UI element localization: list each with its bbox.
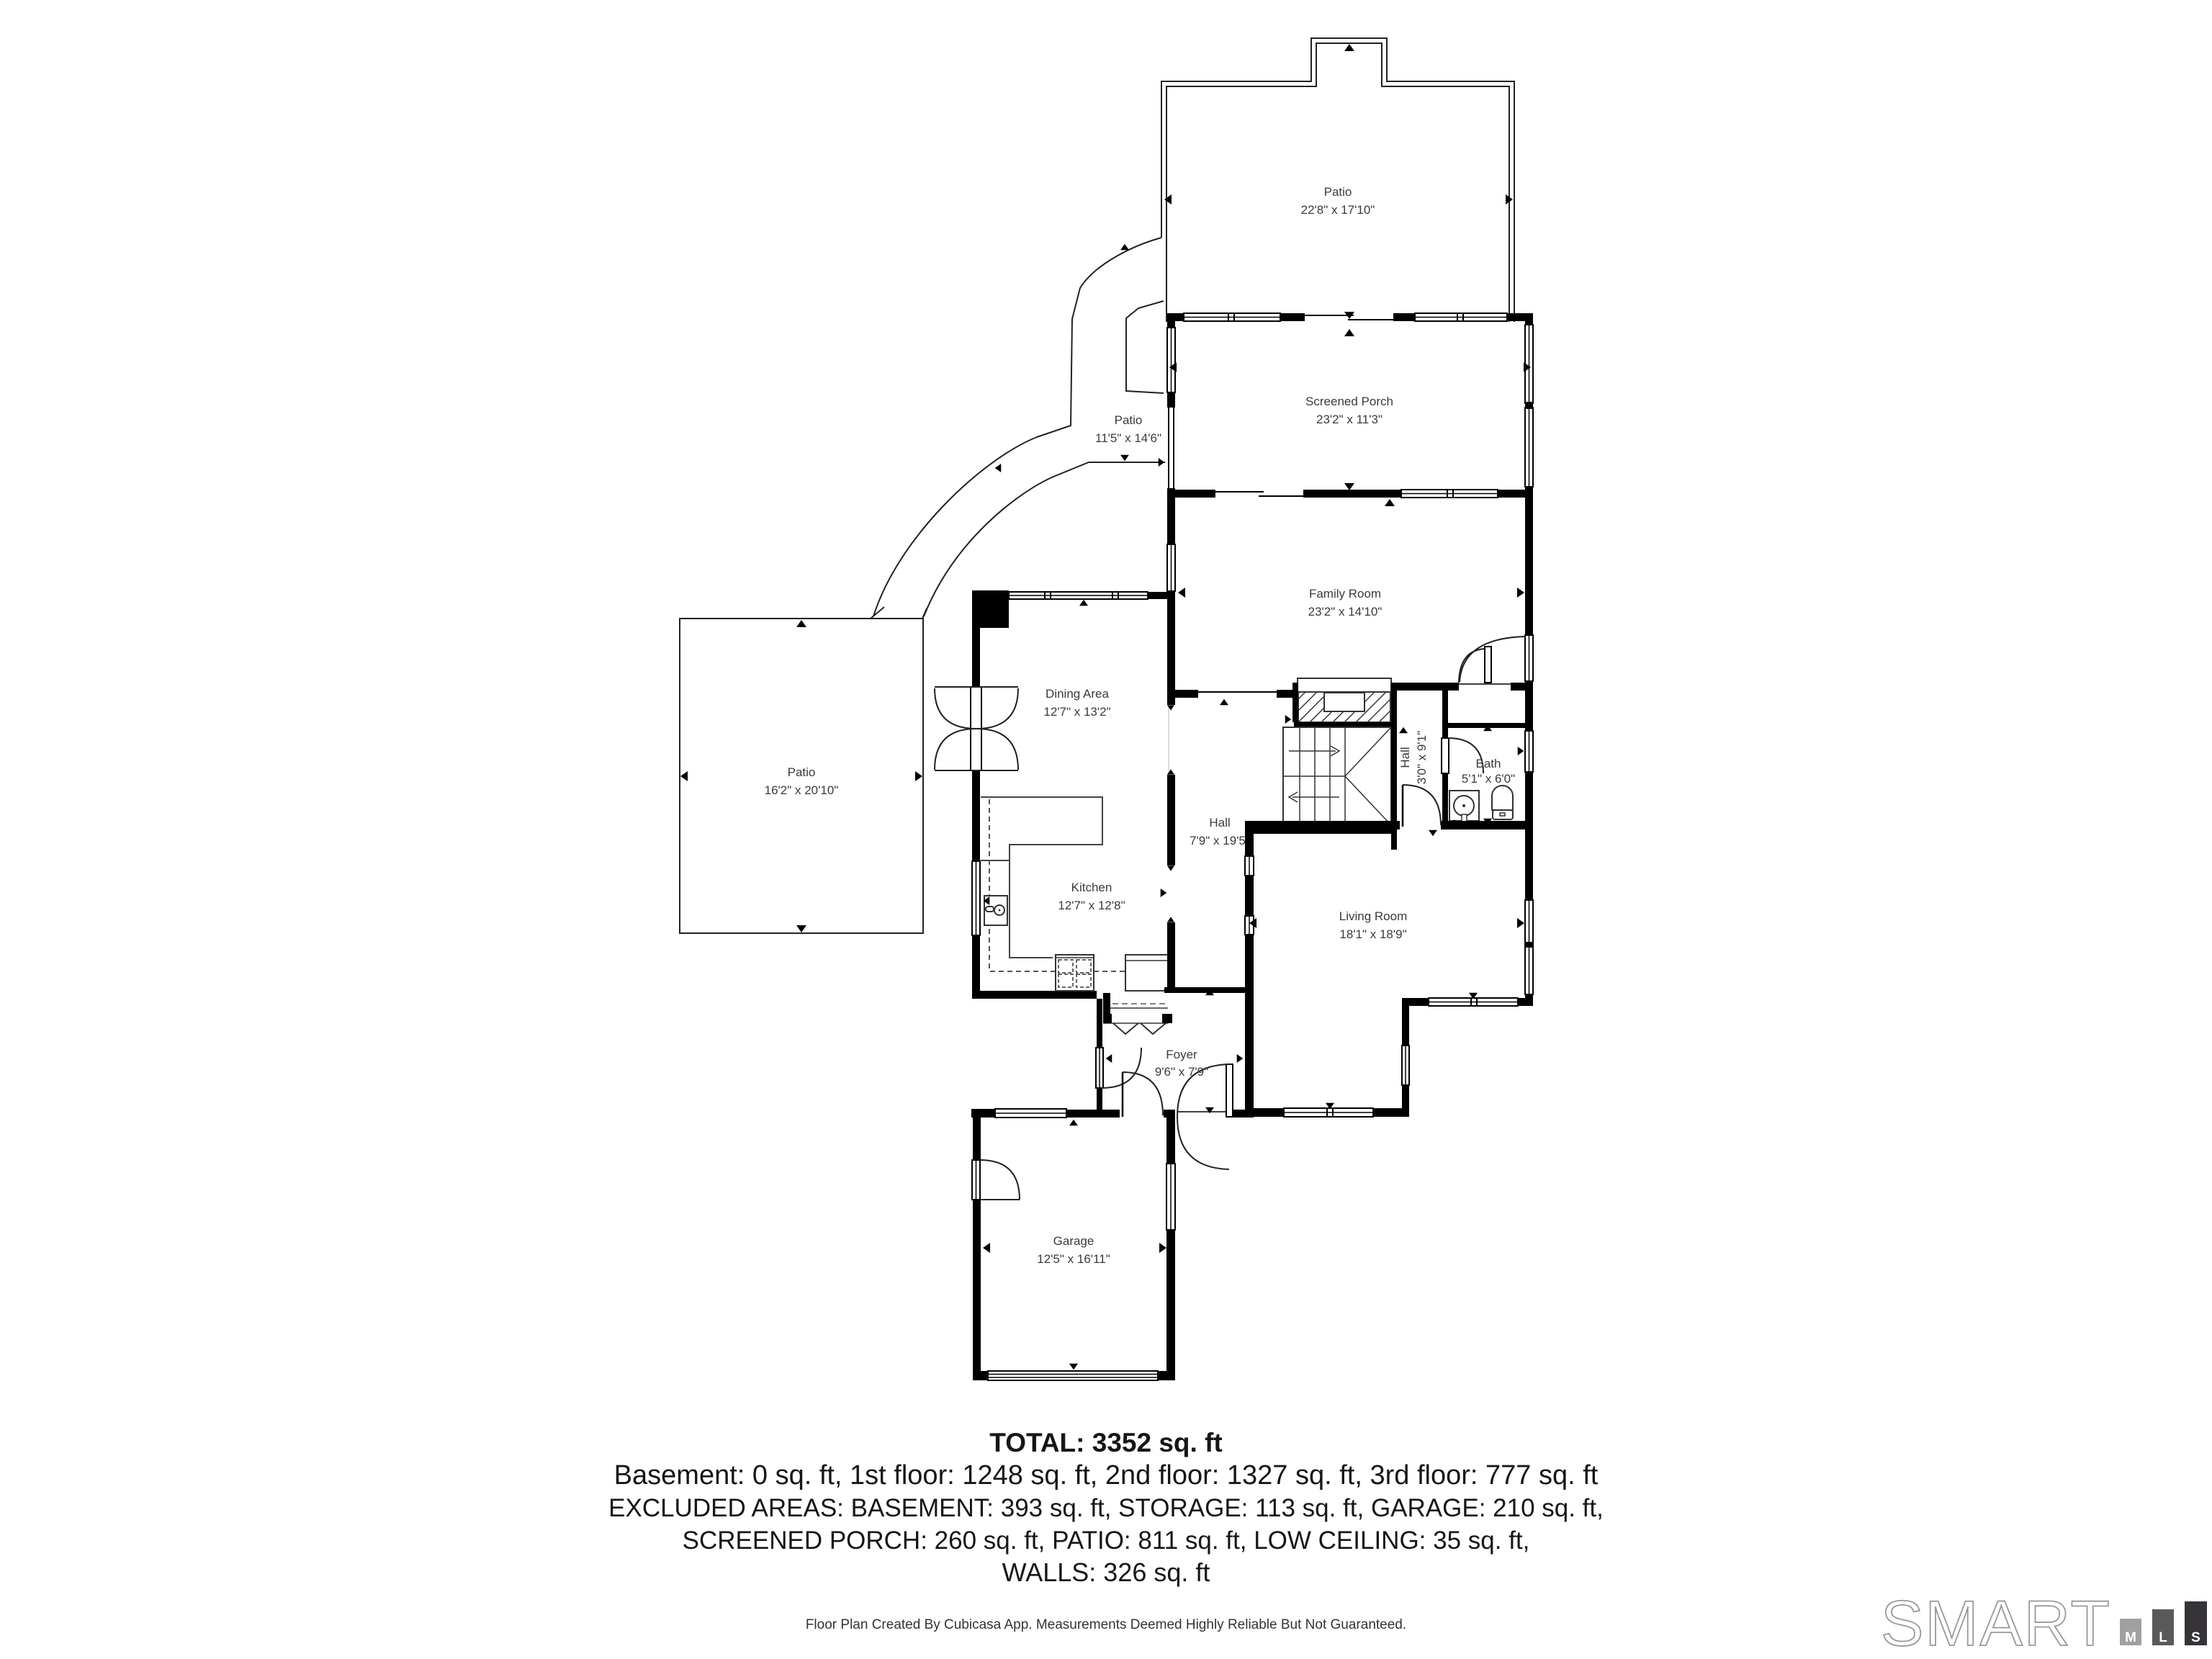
svg-text:22'8" x 17'10": 22'8" x 17'10"	[1301, 203, 1375, 217]
svg-text:7'9" x 19'5": 7'9" x 19'5"	[1190, 834, 1250, 848]
svg-text:Dining Area: Dining Area	[1046, 687, 1109, 701]
svg-text:Basement: 0 sq. ft, 1st floor:: Basement: 0 sq. ft, 1st floor: 1248 sq. …	[614, 1460, 1599, 1491]
svg-text:EXCLUDED AREAS: BASEMENT: 393: EXCLUDED AREAS: BASEMENT: 393 sq. ft, ST…	[608, 1494, 1604, 1522]
svg-text:Patio: Patio	[1324, 185, 1352, 199]
svg-text:Kitchen: Kitchen	[1071, 881, 1112, 894]
svg-text:SCREENED PORCH: 260 sq. ft, PA: SCREENED PORCH: 260 sq. ft, PATIO: 811 s…	[683, 1527, 1530, 1555]
svg-text:18'1" x 18'9": 18'1" x 18'9"	[1339, 927, 1406, 941]
svg-text:Patio: Patio	[788, 765, 816, 779]
svg-text:SMART: SMART	[1881, 1587, 2111, 1659]
svg-text:23'2" x 11'3": 23'2" x 11'3"	[1316, 413, 1382, 426]
svg-text:16'2" x 20'10": 16'2" x 20'10"	[765, 783, 839, 797]
svg-text:23'2" x 14'10": 23'2" x 14'10"	[1308, 605, 1382, 619]
svg-text:Hall: Hall	[1398, 747, 1412, 768]
svg-text:11'5" x 14'6": 11'5" x 14'6"	[1095, 431, 1161, 445]
svg-text:9'6" x 7'9": 9'6" x 7'9"	[1155, 1065, 1208, 1079]
svg-text:12'7" x 12'8": 12'7" x 12'8"	[1058, 899, 1125, 912]
svg-text:M: M	[2125, 1630, 2136, 1645]
svg-text:WALLS: 326 sq. ft: WALLS: 326 sq. ft	[1002, 1557, 1210, 1587]
svg-text:S: S	[2191, 1630, 2200, 1645]
svg-text:Screened Porch: Screened Porch	[1305, 395, 1393, 408]
svg-text:Floor Plan Created By Cubicasa: Floor Plan Created By Cubicasa App. Meas…	[806, 1617, 1406, 1632]
svg-text:12'5" x 16'11": 12'5" x 16'11"	[1037, 1252, 1110, 1266]
svg-text:Bath: Bath	[1476, 757, 1501, 770]
svg-text:Living Room: Living Room	[1339, 909, 1408, 923]
svg-text:12'7" x 13'2": 12'7" x 13'2"	[1043, 705, 1110, 719]
svg-text:L: L	[2159, 1630, 2167, 1645]
svg-text:5'1" x 6'0": 5'1" x 6'0"	[1462, 772, 1515, 786]
svg-text:Family Room: Family Room	[1309, 587, 1381, 601]
svg-text:Hall: Hall	[1209, 816, 1230, 829]
svg-text:TOTAL: 3352 sq. ft: TOTAL: 3352 sq. ft	[989, 1428, 1222, 1457]
svg-text:Foyer: Foyer	[1166, 1048, 1197, 1061]
svg-text:3'0" x 9'1": 3'0" x 9'1"	[1415, 731, 1429, 784]
svg-text:Patio: Patio	[1115, 413, 1143, 427]
svg-text:Garage: Garage	[1053, 1234, 1094, 1248]
